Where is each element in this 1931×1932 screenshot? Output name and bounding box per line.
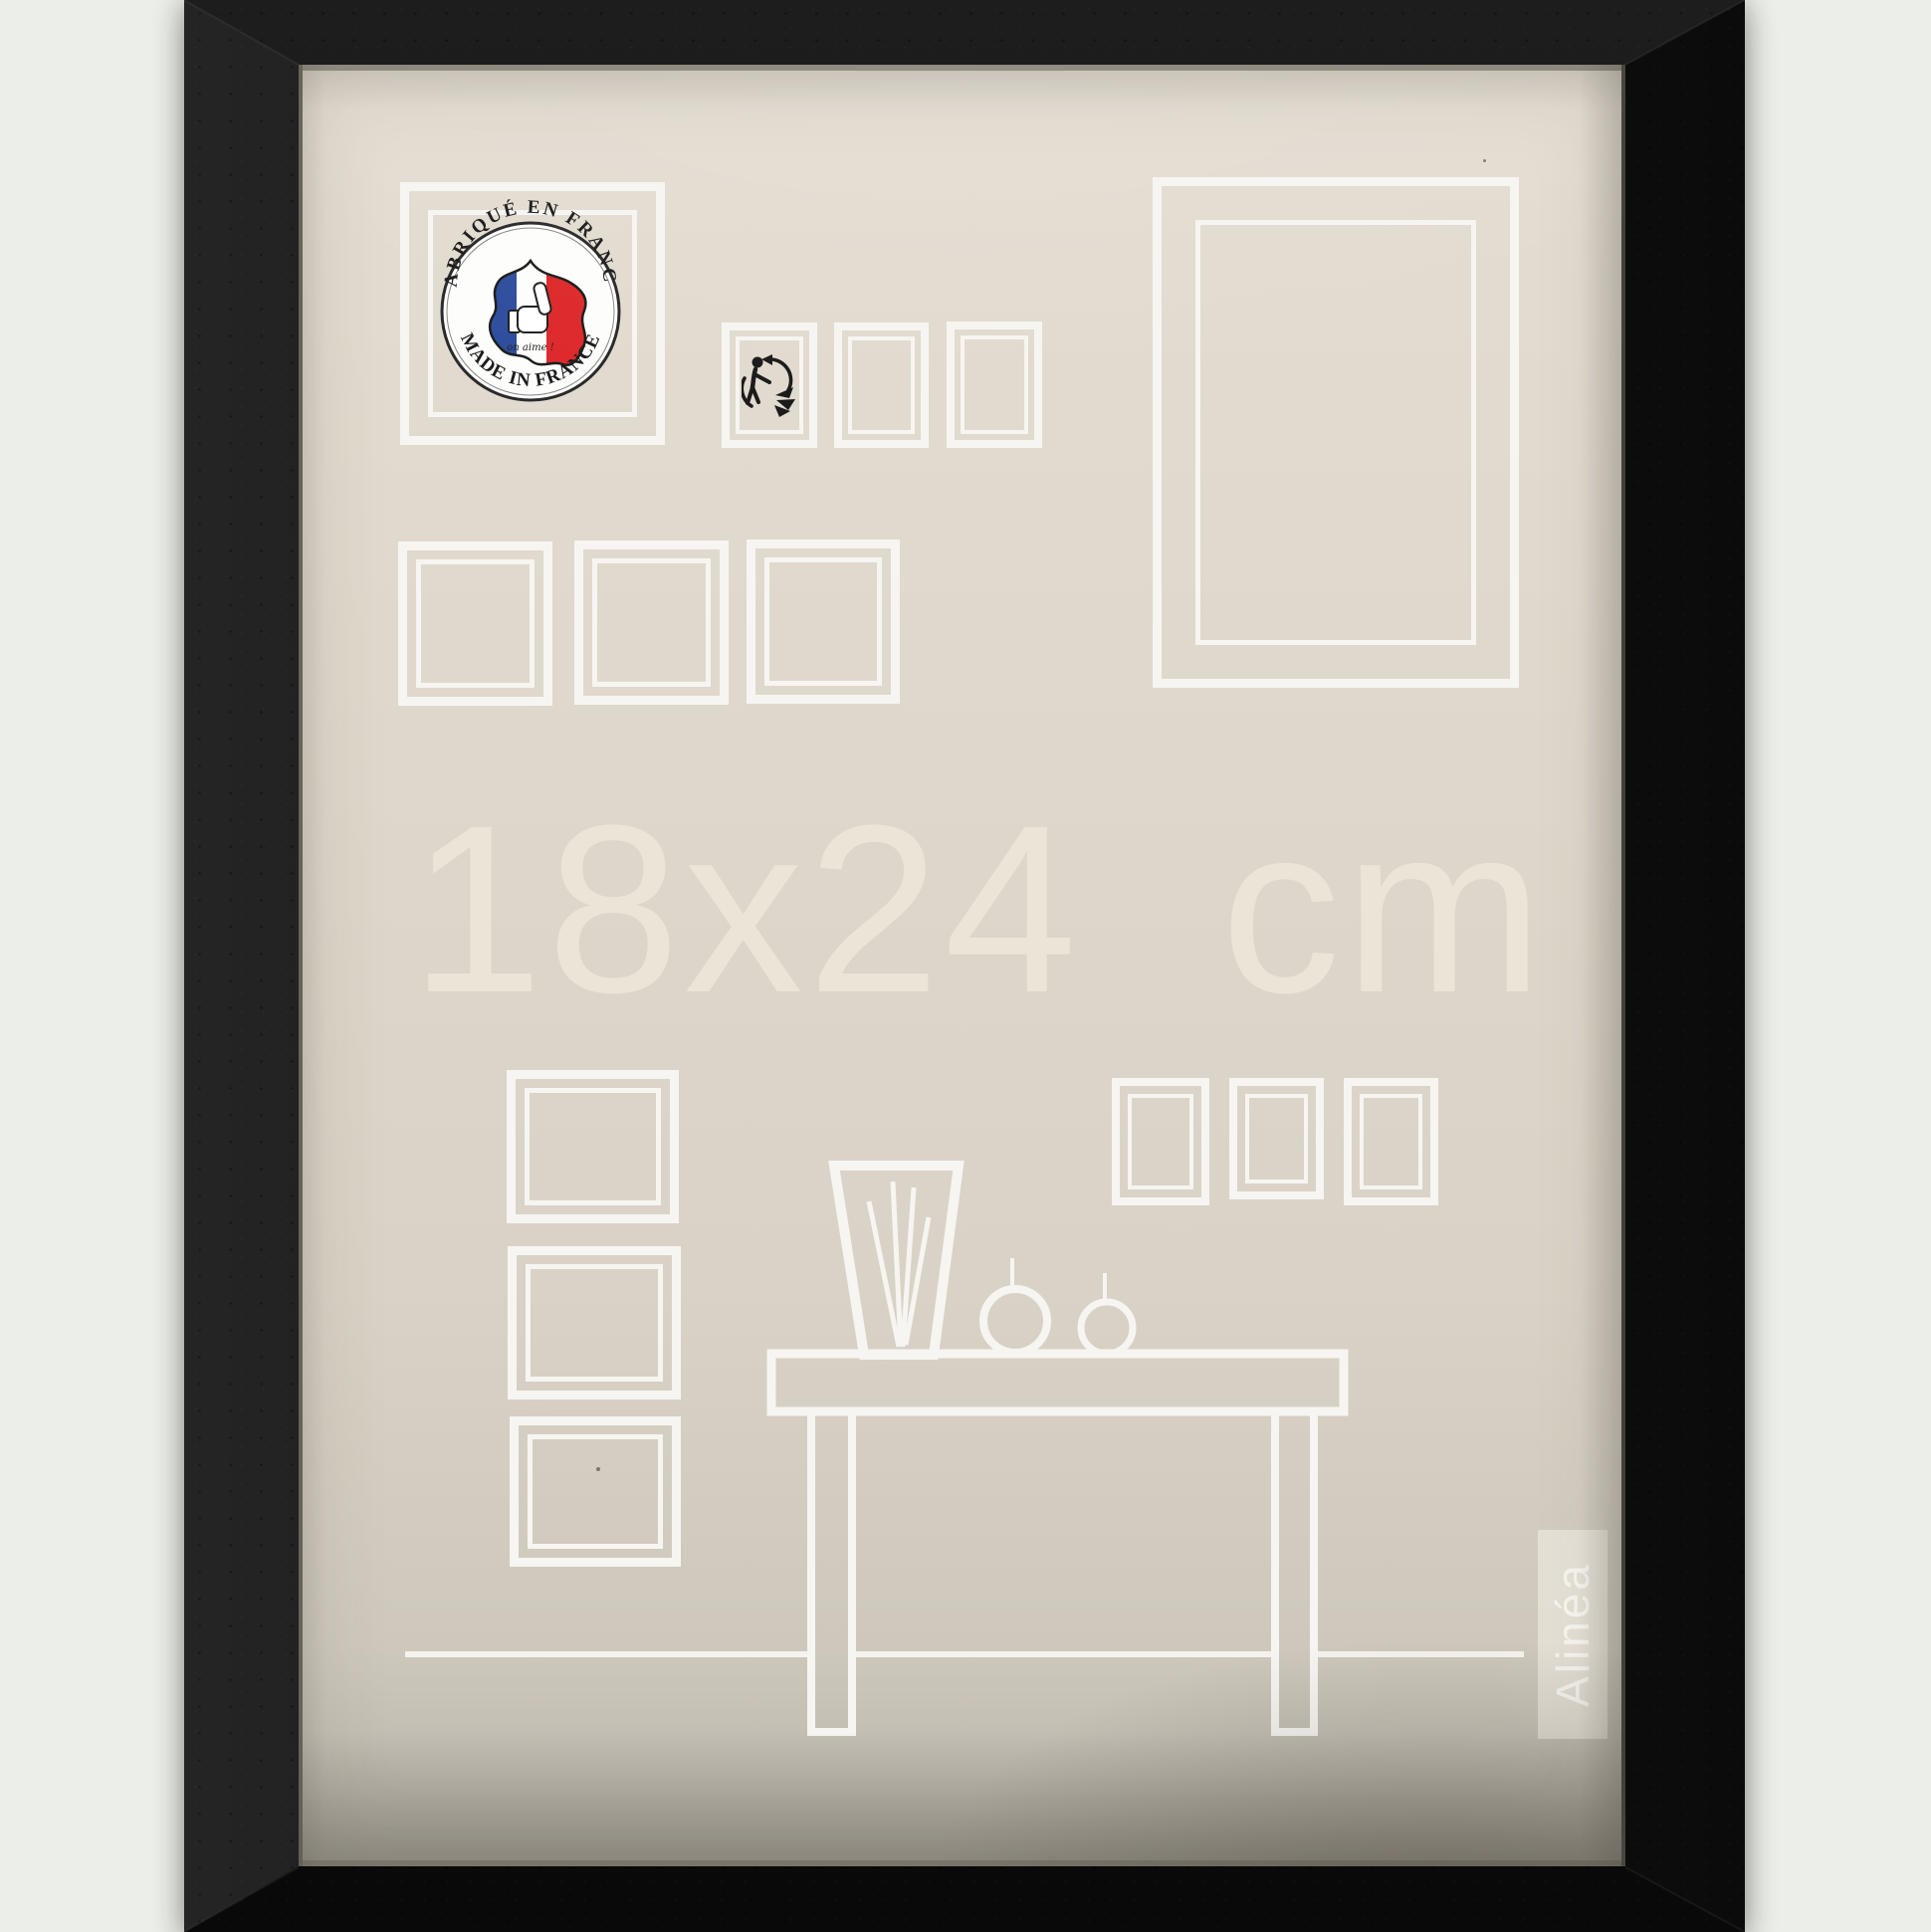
wall-frame-col-3 [510, 1416, 681, 1567]
brand-logo-text: Alinéa [1546, 1562, 1600, 1707]
dust-speck [1483, 159, 1486, 162]
product-photo-frame-18x24: { "product": { "size_label": "18x24 cm",… [0, 0, 1931, 1932]
frame-insert-paper: on aime ! FABRIQUÉ EN FRANCE MADE IN FRA… [299, 65, 1625, 1866]
glass-edge-right [1621, 65, 1625, 1866]
table-leg-left [811, 1411, 852, 1732]
wall-frame-large [1153, 177, 1519, 688]
brand-watermark-patch: Alinéa [1538, 1530, 1608, 1739]
dust-speck [596, 1467, 600, 1471]
table-scene-line-art [751, 1140, 1389, 1747]
wall-frame-mid-2 [574, 540, 729, 705]
wall-frame-mid-1 [398, 541, 552, 706]
wall-frame-col-1 [507, 1070, 679, 1223]
made-in-france-badge-icon: on aime ! FABRIQUÉ EN FRANCE MADE IN FRA… [409, 191, 656, 436]
floor-line-segment [405, 1651, 811, 1657]
triman-recycling-icon [742, 354, 797, 418]
wall-frame-small-3 [947, 322, 1042, 448]
wall-frame-mid-3 [747, 539, 900, 704]
badge-script-text: on aime ! [507, 342, 553, 353]
wall-frame-small-1 [722, 322, 817, 448]
table-top [771, 1354, 1344, 1411]
glass-edge-bottom [299, 1860, 1625, 1866]
wall-frame-badge-square: on aime ! FABRIQUÉ EN FRANCE MADE IN FRA… [400, 182, 665, 445]
size-label: 18x24 cm [410, 789, 1548, 1028]
wall-frame-small-2 [834, 322, 929, 448]
vase-sticks [869, 1181, 929, 1347]
glass-edge-left [299, 65, 303, 1866]
glass-edge-top [299, 65, 1625, 71]
wall-frame-col-2 [508, 1246, 681, 1399]
table-leg-right [1275, 1411, 1314, 1732]
round-vase-icon [983, 1289, 1047, 1353]
round-vase-small-icon [1081, 1302, 1133, 1354]
